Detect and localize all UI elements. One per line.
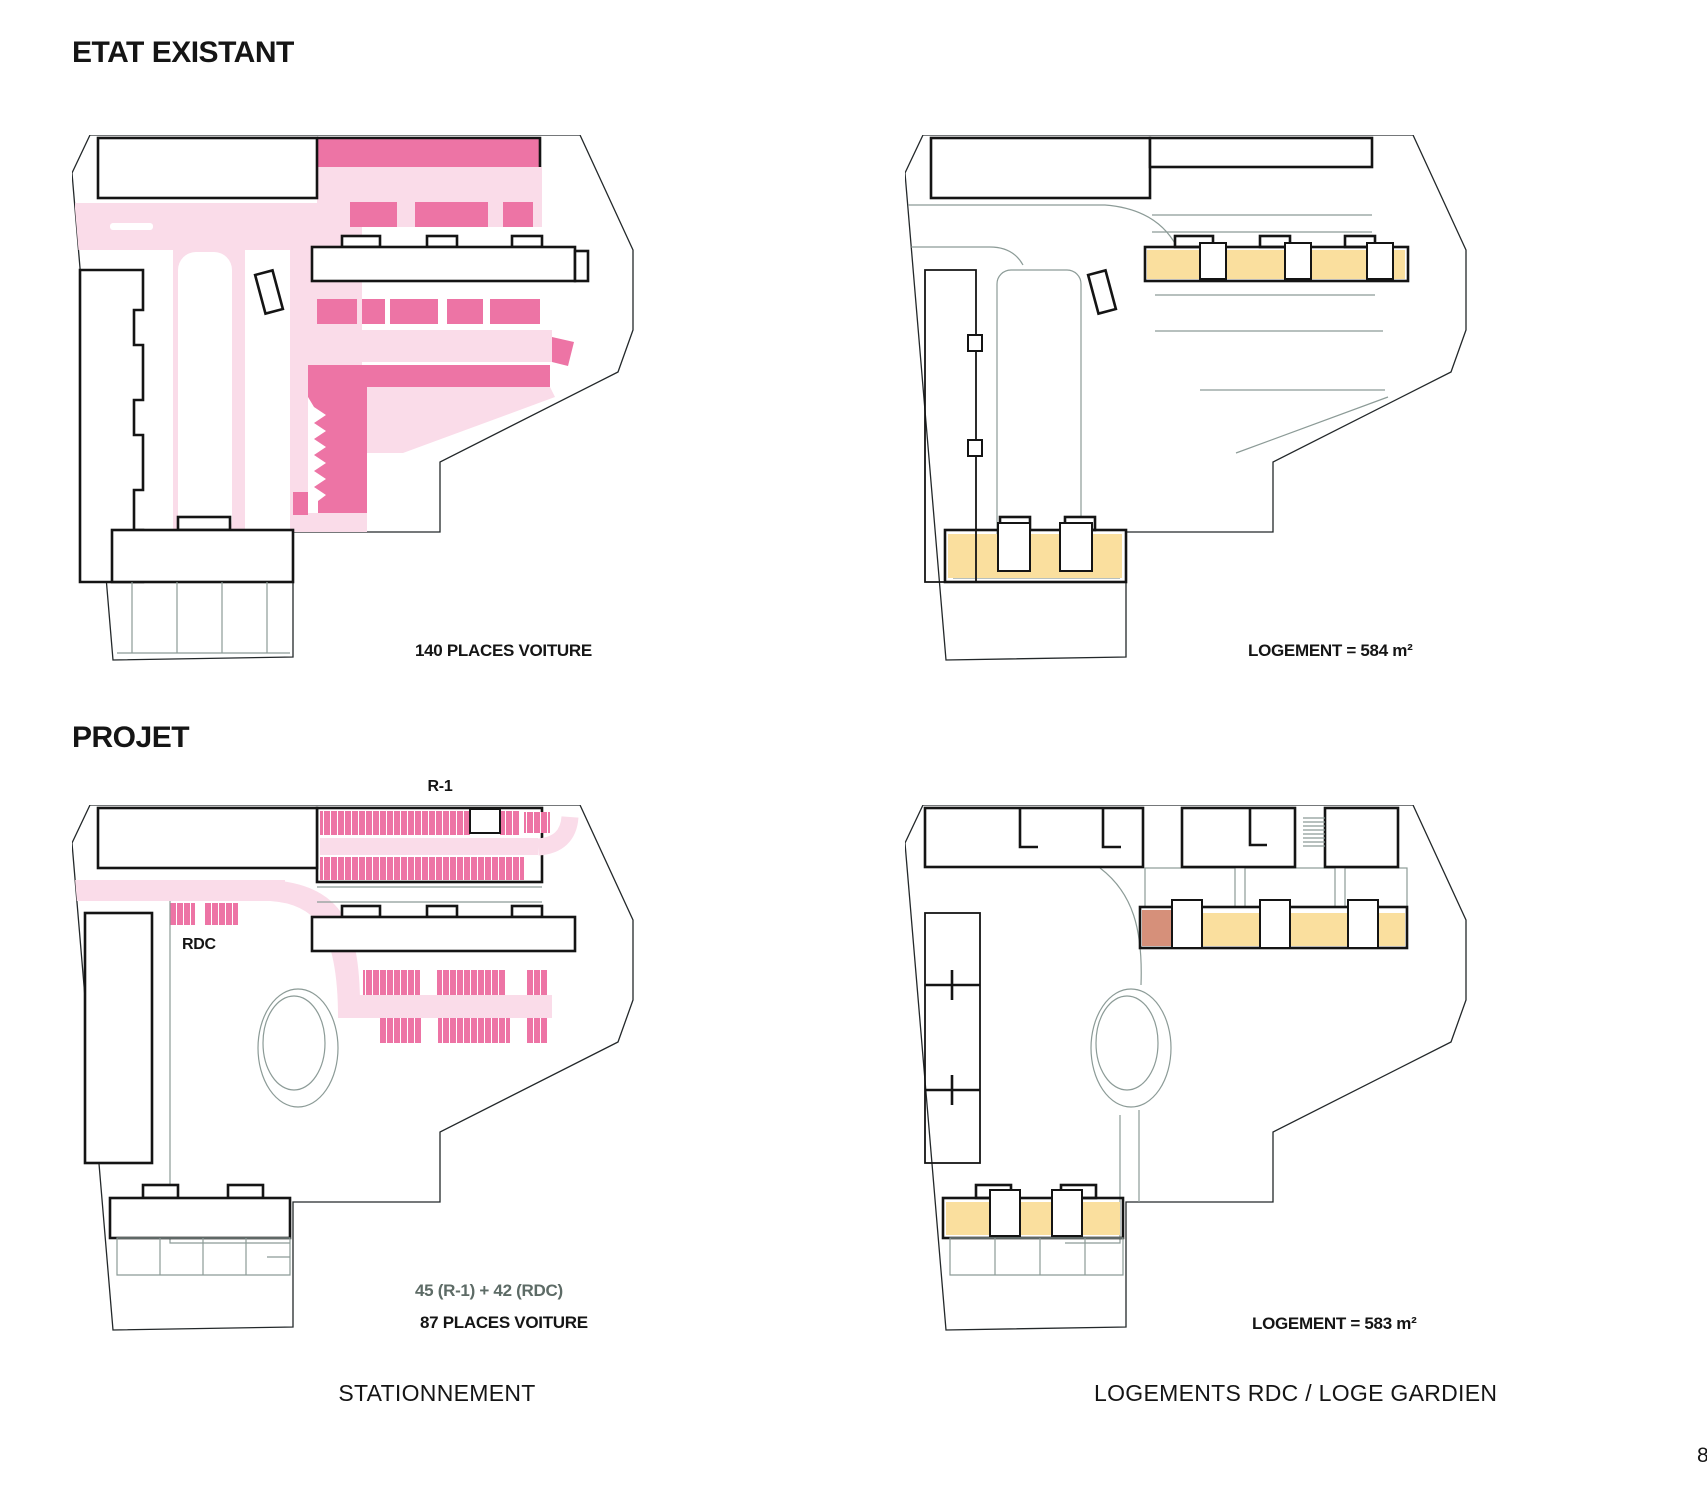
existing-parking-stat: 140 PLACES VOITURE bbox=[415, 641, 592, 661]
r1-parking-deck bbox=[317, 808, 570, 882]
housing-row bbox=[1140, 900, 1407, 948]
plan-existing-housing bbox=[905, 135, 1467, 665]
section-title-project: PROJET bbox=[72, 721, 189, 755]
section-title-existing: ETAT EXISTANT bbox=[72, 36, 294, 70]
plan-project-housing bbox=[905, 805, 1467, 1335]
existing-housing-stat: LOGEMENT = 584 m² bbox=[1248, 641, 1412, 661]
level-label-rdc: RDC bbox=[182, 936, 216, 954]
page-number: 8 bbox=[1697, 1444, 1707, 1468]
site-boundary bbox=[905, 805, 1466, 1330]
bar-building bbox=[312, 906, 575, 951]
level-label-r1: R-1 bbox=[410, 778, 470, 796]
caption-parking-column: STATIONNEMENT bbox=[297, 1380, 577, 1407]
plan-existing-parking bbox=[72, 135, 634, 665]
plan-project-parking bbox=[72, 805, 634, 1335]
project-parking-stat: 87 PLACES VOITURE bbox=[420, 1313, 588, 1333]
caption-housing-column: LOGEMENTS RDC / LOGE GARDIEN bbox=[1094, 1380, 1474, 1407]
project-parking-breakdown: 45 (R-1) + 42 (RDC) bbox=[415, 1281, 563, 1301]
plan-sheet: { "page": { "number_partial": "8" }, "co… bbox=[0, 0, 1707, 1501]
project-housing-stat: LOGEMENT = 583 m² bbox=[1252, 1314, 1416, 1334]
